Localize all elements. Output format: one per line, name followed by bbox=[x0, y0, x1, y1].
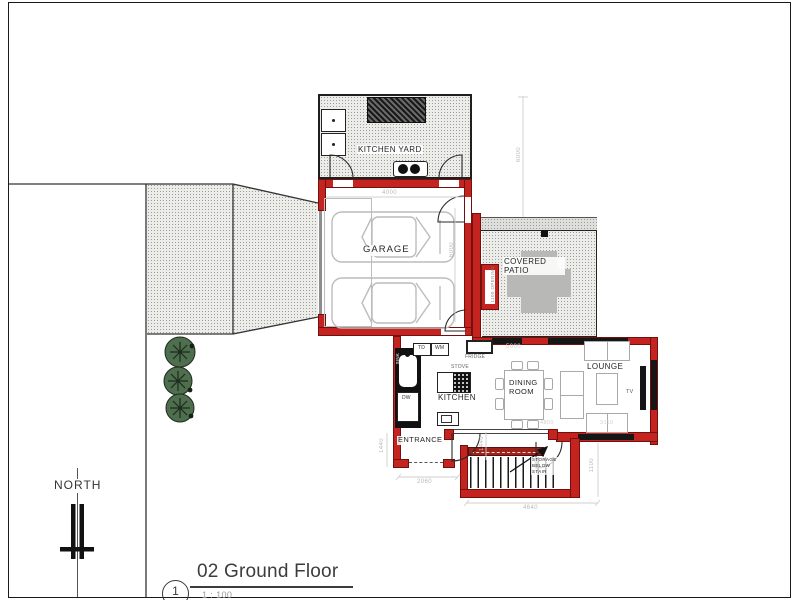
kitchen-sink-tap bbox=[405, 352, 410, 357]
patio-beam-band bbox=[481, 217, 597, 231]
dim-garage-width: 4000 bbox=[382, 190, 397, 196]
window-bottom-lounge bbox=[578, 434, 634, 440]
patio-wall-left bbox=[472, 213, 481, 338]
floor-plan-sheet: DW TD WM FRIDGE STOVE SINK bbox=[0, 0, 800, 600]
covered-patio-label: COVERED PATIO bbox=[503, 257, 565, 275]
dining-chair bbox=[511, 361, 523, 370]
dining-chair bbox=[495, 378, 504, 390]
north-label: NORTH bbox=[53, 479, 102, 493]
stair-wall-bottom bbox=[460, 489, 580, 498]
patio-column bbox=[541, 230, 548, 237]
kitchen-label: KITCHEN bbox=[437, 393, 477, 402]
kitchen-lower-unit-inner bbox=[441, 415, 452, 423]
dining-bottom-stub-right bbox=[548, 429, 558, 440]
sofa-cushion-line bbox=[561, 395, 583, 396]
garage-bay-outline bbox=[324, 198, 372, 327]
dim-stair-height: 1100 bbox=[589, 458, 595, 473]
lounge-armchair bbox=[596, 373, 618, 405]
dim-entrance-width: 2060 bbox=[417, 479, 432, 485]
dining-chair bbox=[544, 398, 553, 410]
garage-top-door-gap-right bbox=[439, 180, 459, 187]
kitchen-sink-bowl bbox=[399, 355, 417, 387]
garage-bottom-door-gap bbox=[441, 328, 465, 335]
dining-chair bbox=[511, 420, 523, 429]
kitchen-yard-label: KITCHEN YARD bbox=[357, 145, 423, 154]
dining-chair bbox=[527, 361, 539, 370]
stair-wall-right bbox=[570, 438, 580, 498]
tumble-dryer-label: TD bbox=[417, 346, 426, 352]
dim-entrance-height: 1440 bbox=[379, 438, 385, 453]
sheet-title: 02 Ground Floor bbox=[196, 561, 339, 583]
yard-sink-bowl-right bbox=[410, 164, 420, 174]
fridge-label: FRIDGE bbox=[464, 355, 486, 361]
sink-label: SINK bbox=[394, 353, 401, 364]
lounge-sofa-left bbox=[560, 371, 584, 419]
driveway-hatch bbox=[147, 184, 233, 334]
yard-appliance-1-knob bbox=[332, 119, 335, 122]
lounge-sofa-top bbox=[584, 341, 630, 361]
dim-lounge-width: 3110 bbox=[600, 420, 613, 426]
entrance-wall-bottom-right bbox=[443, 459, 455, 468]
stair-note-line1: STORAGE bbox=[532, 457, 557, 463]
drawing-number: 1 bbox=[172, 584, 179, 598]
dining-chair bbox=[495, 398, 504, 410]
entrance-wall-bottom-left bbox=[393, 459, 409, 468]
washing-machine-label: WM bbox=[434, 346, 445, 352]
covered-patio-line2: PATIO bbox=[504, 266, 564, 275]
dining-line2: ROOM bbox=[509, 388, 538, 397]
yard-sink-bowl-left bbox=[398, 164, 408, 174]
dim-yard-width: 4000 bbox=[381, 127, 395, 133]
stove-hob bbox=[453, 373, 470, 392]
entrance-label: ENTRANCE bbox=[397, 436, 443, 445]
driveway-hatch-taper bbox=[233, 184, 318, 334]
stair-band-dash bbox=[471, 452, 541, 453]
stove-label: STOVE bbox=[450, 365, 470, 371]
garage-door-panel bbox=[319, 211, 322, 314]
window-right-lounge bbox=[651, 360, 657, 410]
drying-rack bbox=[367, 97, 426, 123]
title-underline bbox=[190, 586, 353, 588]
dining-chair bbox=[544, 378, 553, 390]
garage-top-door-gap-left bbox=[333, 180, 353, 187]
entrance-threshold-dashed bbox=[409, 462, 443, 464]
dining-chair bbox=[527, 420, 539, 429]
fridge-box bbox=[466, 340, 493, 354]
dim-dining-width: 5000 bbox=[506, 344, 521, 350]
patio-opening-label: 1100 OPENING bbox=[490, 266, 495, 302]
drawing-number-badge: 1 bbox=[162, 580, 189, 600]
dim-yard-height: 6000 bbox=[516, 147, 522, 162]
garage-label: GARAGE bbox=[362, 245, 411, 256]
dim-stair-width: 4640 bbox=[523, 505, 538, 511]
dining-room-label: DINING ROOM bbox=[508, 379, 539, 396]
sheet-scale: 1 : 100 bbox=[201, 590, 233, 600]
yard-appliance-2-knob bbox=[332, 143, 335, 146]
garage-right-door-gap bbox=[465, 197, 471, 223]
dishwasher-label: DW bbox=[401, 396, 412, 402]
sofa-cushion-line bbox=[607, 342, 608, 360]
dim-garage-depth: 6000 bbox=[449, 242, 455, 257]
dining-bottom-stub-left bbox=[444, 429, 454, 440]
tv-label: TV bbox=[625, 389, 634, 395]
stair-note: STORAGE BELOW STAIR bbox=[531, 457, 558, 475]
dim-hall-height: 1440 bbox=[479, 436, 485, 451]
covered-patio-line1: COVERED bbox=[504, 257, 564, 266]
lounge-label: LOUNGE bbox=[586, 362, 624, 371]
tv-unit bbox=[640, 366, 646, 410]
stair-note-line3: STAIR bbox=[532, 469, 557, 475]
sheet-border bbox=[8, 2, 791, 598]
dining-bottom-window bbox=[454, 429, 548, 434]
dim-dining-bottom: 4800 bbox=[540, 420, 554, 426]
